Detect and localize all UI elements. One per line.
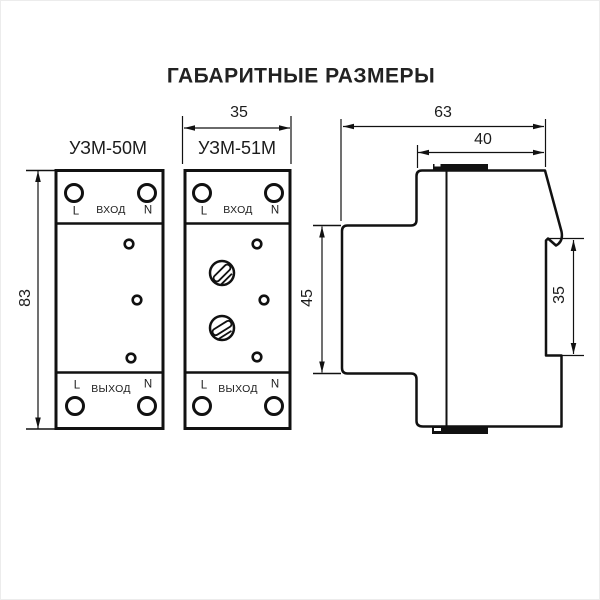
model-label-uzm-50m: УЗМ-50М [69, 139, 147, 157]
terminal-circle [139, 398, 156, 415]
din-clip-top [433, 164, 488, 171]
led-hole [127, 354, 136, 363]
dim-height-label: 83 [18, 289, 34, 307]
terminal-circle [139, 185, 156, 202]
led-hole [260, 296, 269, 305]
output-label: ВЫХОД [91, 384, 131, 395]
terminal-circle [266, 185, 283, 202]
dim-arrowhead [35, 418, 41, 429]
dim-front-height-label: 45 [300, 289, 316, 307]
dim-arrowhead [533, 124, 544, 130]
terminal-circle [67, 398, 84, 415]
terminal-circle [194, 398, 211, 415]
dimensional-drawing: ГАБАРИТНЫЕ РАЗМЕРЫ УЗМ-50М УЗМ-51М 35 83… [0, 0, 600, 600]
led-hole [253, 353, 262, 362]
side-view [342, 164, 562, 434]
input-label: ВХОД [223, 205, 252, 216]
model-label-uzm-51m: УЗМ-51М [198, 139, 276, 157]
led-hole [133, 296, 142, 305]
terminal-label-n: N [144, 205, 152, 217]
dim-arrowhead [343, 124, 354, 130]
screw-head-icon [210, 261, 235, 286]
dim-arrowhead [35, 171, 41, 182]
terminal-label-n: N [271, 205, 279, 217]
terminal-circle [66, 185, 83, 202]
dim-arrowhead [184, 125, 195, 131]
dim-arrowhead [279, 125, 290, 131]
screw-head-icon [210, 316, 235, 340]
dim-front-height-45 [313, 226, 341, 374]
dim-behind-front-label: 40 [474, 132, 492, 148]
led-hole [125, 240, 134, 249]
dim-depth-label: 63 [434, 105, 452, 121]
dim-arrowhead [571, 343, 577, 354]
dim-arrowhead [418, 150, 429, 156]
terminal-label-l: L [201, 206, 207, 218]
dim-arrowhead [319, 227, 325, 238]
terminal-label-n: N [271, 379, 279, 391]
side-view-outline [342, 171, 562, 427]
terminal-circle [266, 398, 283, 415]
dim-arrowhead [319, 362, 325, 373]
terminal-label-l: L [201, 380, 207, 392]
terminal-label-l: L [73, 206, 79, 218]
dim-arrowhead [571, 240, 577, 251]
dim-din-recess-label: 35 [552, 286, 568, 304]
dim-arrowhead [533, 150, 544, 156]
led-hole [253, 240, 262, 249]
terminal-label-l: L [74, 380, 80, 392]
output-label: ВЫХОД [218, 384, 258, 395]
dim-width-label: 35 [230, 105, 248, 121]
din-clip-bottom [432, 427, 488, 435]
input-label: ВХОД [96, 205, 125, 216]
terminal-circle [194, 185, 211, 202]
terminal-label-n: N [144, 379, 152, 391]
page-title: ГАБАРИТНЫЕ РАЗМЕРЫ [167, 66, 435, 87]
